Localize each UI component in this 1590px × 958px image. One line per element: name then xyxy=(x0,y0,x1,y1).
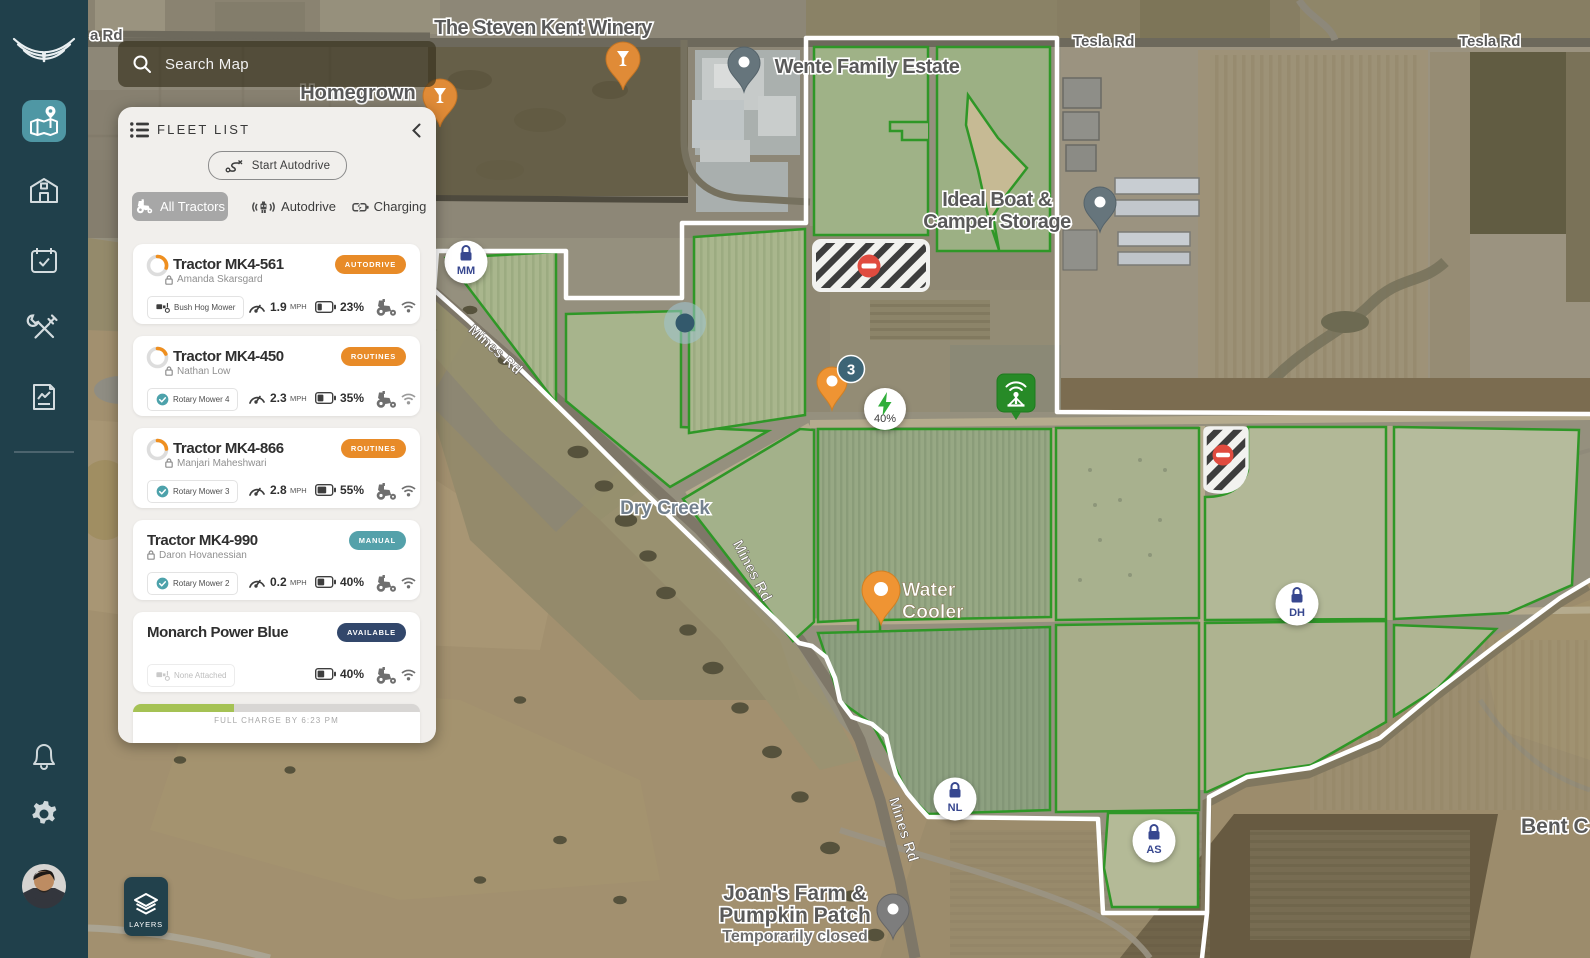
svg-text:DH: DH xyxy=(1289,607,1305,619)
svg-text:Tesla Rd: Tesla Rd xyxy=(1073,33,1134,50)
svg-text:3: 3 xyxy=(847,362,855,379)
svg-text:AS: AS xyxy=(1146,844,1161,856)
svg-text:Bent C: Bent C xyxy=(1521,815,1589,838)
svg-text:NL: NL xyxy=(948,802,963,814)
svg-text:Cooler: Cooler xyxy=(902,601,964,623)
svg-text:40%: 40% xyxy=(874,413,896,425)
svg-text:Ideal Boat &: Ideal Boat & xyxy=(942,189,1052,211)
svg-text:Water: Water xyxy=(902,579,956,601)
svg-text:a Rd: a Rd xyxy=(90,27,123,44)
svg-text:Dry Creek: Dry Creek xyxy=(620,498,710,519)
svg-text:Joan's Farm &: Joan's Farm & xyxy=(723,882,867,905)
svg-text:The Steven Kent Winery: The Steven Kent Winery xyxy=(434,17,653,39)
svg-text:Camper Storage: Camper Storage xyxy=(923,211,1071,233)
svg-text:Tesla Rd: Tesla Rd xyxy=(1459,33,1520,50)
svg-text:MM: MM xyxy=(457,265,475,277)
svg-text:Temporarily closed: Temporarily closed xyxy=(722,928,868,945)
svg-text:Pumpkin Patch: Pumpkin Patch xyxy=(719,904,871,927)
svg-text:Wente Family Estate: Wente Family Estate xyxy=(775,56,960,78)
